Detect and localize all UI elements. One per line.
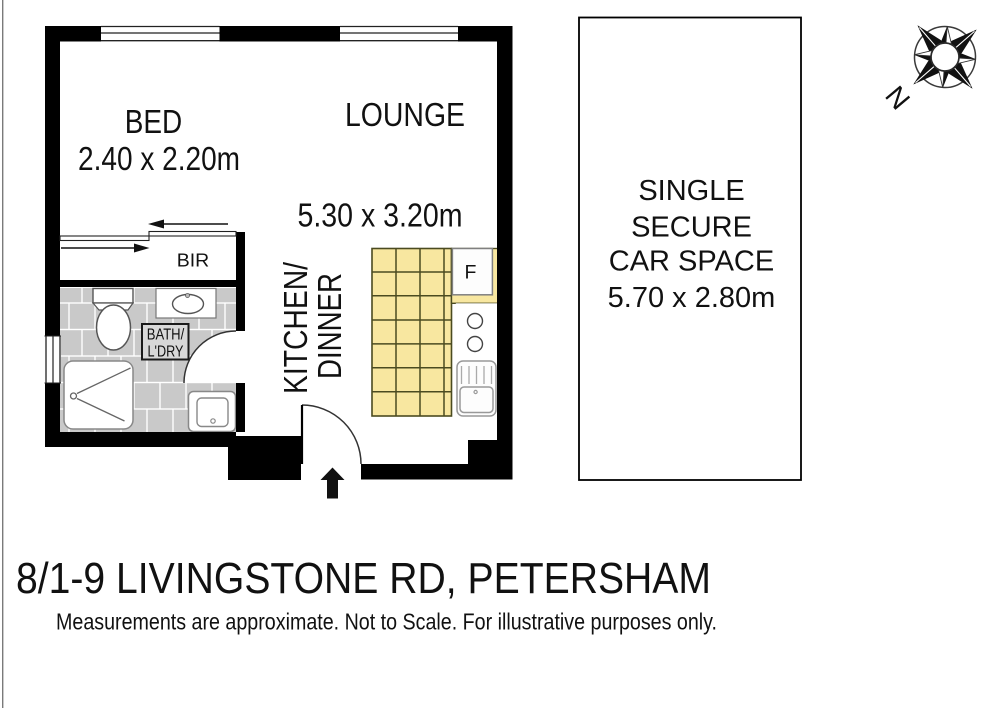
svg-text:BED: BED (125, 103, 183, 140)
svg-text:8/1-9 LIVINGSTONE RD, PETERSHA: 8/1-9 LIVINGSTONE RD, PETERSHAM (16, 554, 711, 603)
svg-text:5.30 x 3.20m: 5.30 x 3.20m (298, 197, 463, 234)
svg-text:SECURE: SECURE (631, 212, 752, 244)
svg-text:2.40 x 2.20m: 2.40 x 2.20m (78, 140, 240, 177)
svg-text:F: F (465, 262, 477, 284)
svg-text:DINNER: DINNER (311, 273, 348, 379)
svg-text:BIR: BIR (177, 251, 210, 271)
svg-text:L'DRY: L'DRY (148, 344, 184, 361)
svg-text:LOUNGE: LOUNGE (345, 96, 465, 133)
svg-text:CAR SPACE: CAR SPACE (609, 246, 774, 278)
svg-text:SINGLE: SINGLE (638, 175, 744, 207)
svg-text:5.70 x 2.80m: 5.70 x 2.80m (608, 282, 776, 314)
svg-text:KITCHEN/: KITCHEN/ (277, 261, 314, 394)
svg-text:Measurements are approximate.: Measurements are approximate. Not to Sca… (56, 609, 717, 635)
svg-text:BATH/: BATH/ (147, 327, 185, 344)
